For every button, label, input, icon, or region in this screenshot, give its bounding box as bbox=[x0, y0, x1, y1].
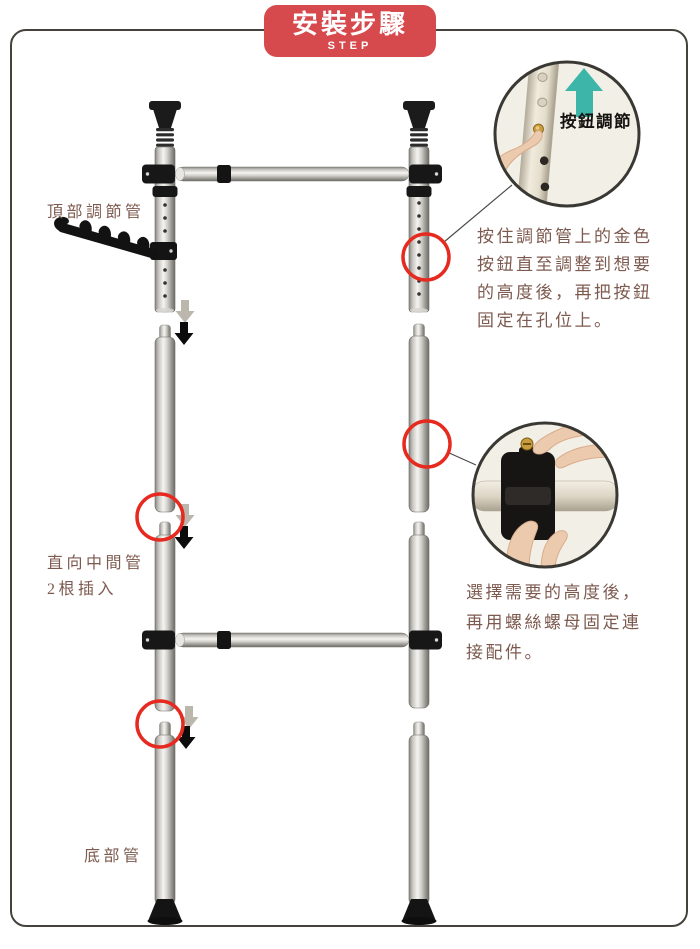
pole-ring-left bbox=[153, 186, 178, 197]
banner-subtitle: STEP bbox=[328, 41, 373, 52]
floor-foot-left bbox=[148, 899, 183, 925]
middle-tube-b-left bbox=[155, 522, 175, 711]
crossbar-end-cap bbox=[176, 634, 185, 647]
down-arrow-gray-icon bbox=[176, 504, 195, 527]
ceiling-cap-right bbox=[403, 101, 435, 128]
callout-line: 按住調節管上的金色 bbox=[477, 223, 653, 251]
floor-foot-right bbox=[402, 899, 437, 925]
inset-screw-fix bbox=[470, 419, 620, 570]
spring-right bbox=[410, 128, 428, 147]
callout-line: 選擇需要的高度後， bbox=[466, 578, 642, 608]
label-top-tube: 頂部調節管 bbox=[47, 203, 145, 222]
lower-crossbar bbox=[142, 631, 442, 650]
bottom-tube-left bbox=[155, 722, 175, 905]
inset-caption-button-adjust: 按鈕調節 bbox=[560, 108, 632, 132]
middle-tube-a-left bbox=[155, 325, 175, 512]
crossbar-sleeve bbox=[217, 631, 231, 649]
pole-ring-right bbox=[407, 186, 432, 197]
hand-finger bbox=[468, 170, 495, 215]
callout-text-button-adjust: 按住調節管上的金色 按鈕直至調整到想要 的高度後，再把按鈕 固定在孔位上。 bbox=[477, 223, 653, 335]
middle-tube-a-right bbox=[409, 324, 429, 512]
crossbar-sleeve bbox=[217, 165, 231, 183]
crossbar-end-cap bbox=[176, 168, 185, 181]
down-arrow-black-icon bbox=[175, 322, 194, 345]
label-middle-tube-2: 2根插入 bbox=[47, 580, 117, 599]
label-bottom-tube: 底部管 bbox=[84, 847, 143, 866]
callout-line: 固定在孔位上。 bbox=[477, 307, 653, 335]
left-pole bbox=[148, 101, 183, 925]
callout-line: 按鈕直至調整到想要 bbox=[477, 251, 653, 279]
installation-instruction-sheet: 安裝步驟 STEP bbox=[0, 0, 700, 949]
upper-crossbar bbox=[142, 165, 442, 198]
callout-leader-line-2 bbox=[447, 452, 476, 465]
insert-arrows-junction1 bbox=[175, 300, 195, 345]
bottom-tube-right bbox=[409, 722, 429, 905]
banner-title: 安裝步驟 bbox=[292, 11, 408, 37]
callout-text-screw-fix: 選擇需要的高度後， 再用螺絲螺母固定連 接配件。 bbox=[466, 578, 642, 668]
step-banner: 安裝步驟 STEP bbox=[264, 5, 436, 57]
assembly-diagram bbox=[0, 0, 700, 949]
label-middle-tube-1: 直向中間管 bbox=[47, 554, 145, 573]
spring-left bbox=[156, 128, 174, 147]
insert-arrows-junction2 bbox=[175, 504, 195, 549]
right-pole bbox=[402, 101, 437, 925]
down-arrow-gray-icon bbox=[176, 300, 195, 323]
ceiling-cap-left bbox=[149, 101, 181, 128]
callout-line: 的高度後，再把按鈕 bbox=[477, 279, 653, 307]
middle-tube-b-right bbox=[409, 522, 429, 708]
callout-line: 接配件。 bbox=[466, 638, 642, 668]
callout-line: 再用螺絲螺母固定連 bbox=[466, 608, 642, 638]
